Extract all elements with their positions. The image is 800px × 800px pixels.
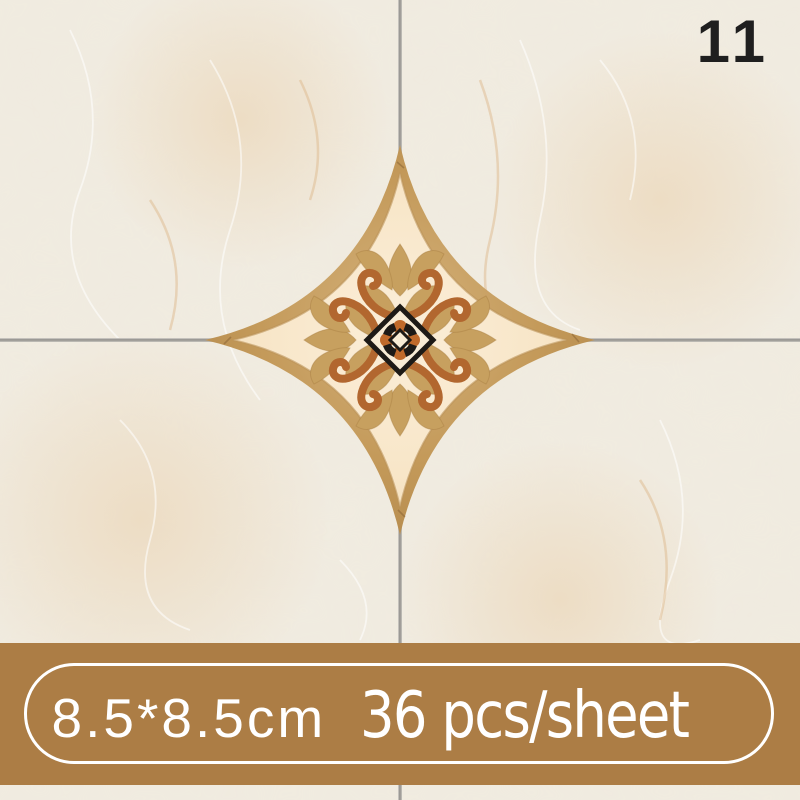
spec-pill: 8.5*8.5cm 36 pcs/sheet: [24, 663, 774, 764]
count-label-text: 36 pcs/sheet: [360, 678, 688, 755]
spec-banner: 8.5*8.5cm 36 pcs/sheet: [0, 643, 800, 785]
star-tile-decal: [180, 120, 620, 560]
size-label: 8.5*8.5cm: [52, 685, 327, 751]
count-label: 36 pcs/sheet: [360, 678, 746, 755]
product-image-canvas: 11 8.5*8.5cm 36 pcs/sheet: [0, 0, 800, 800]
badge-number: 11: [697, 12, 770, 72]
